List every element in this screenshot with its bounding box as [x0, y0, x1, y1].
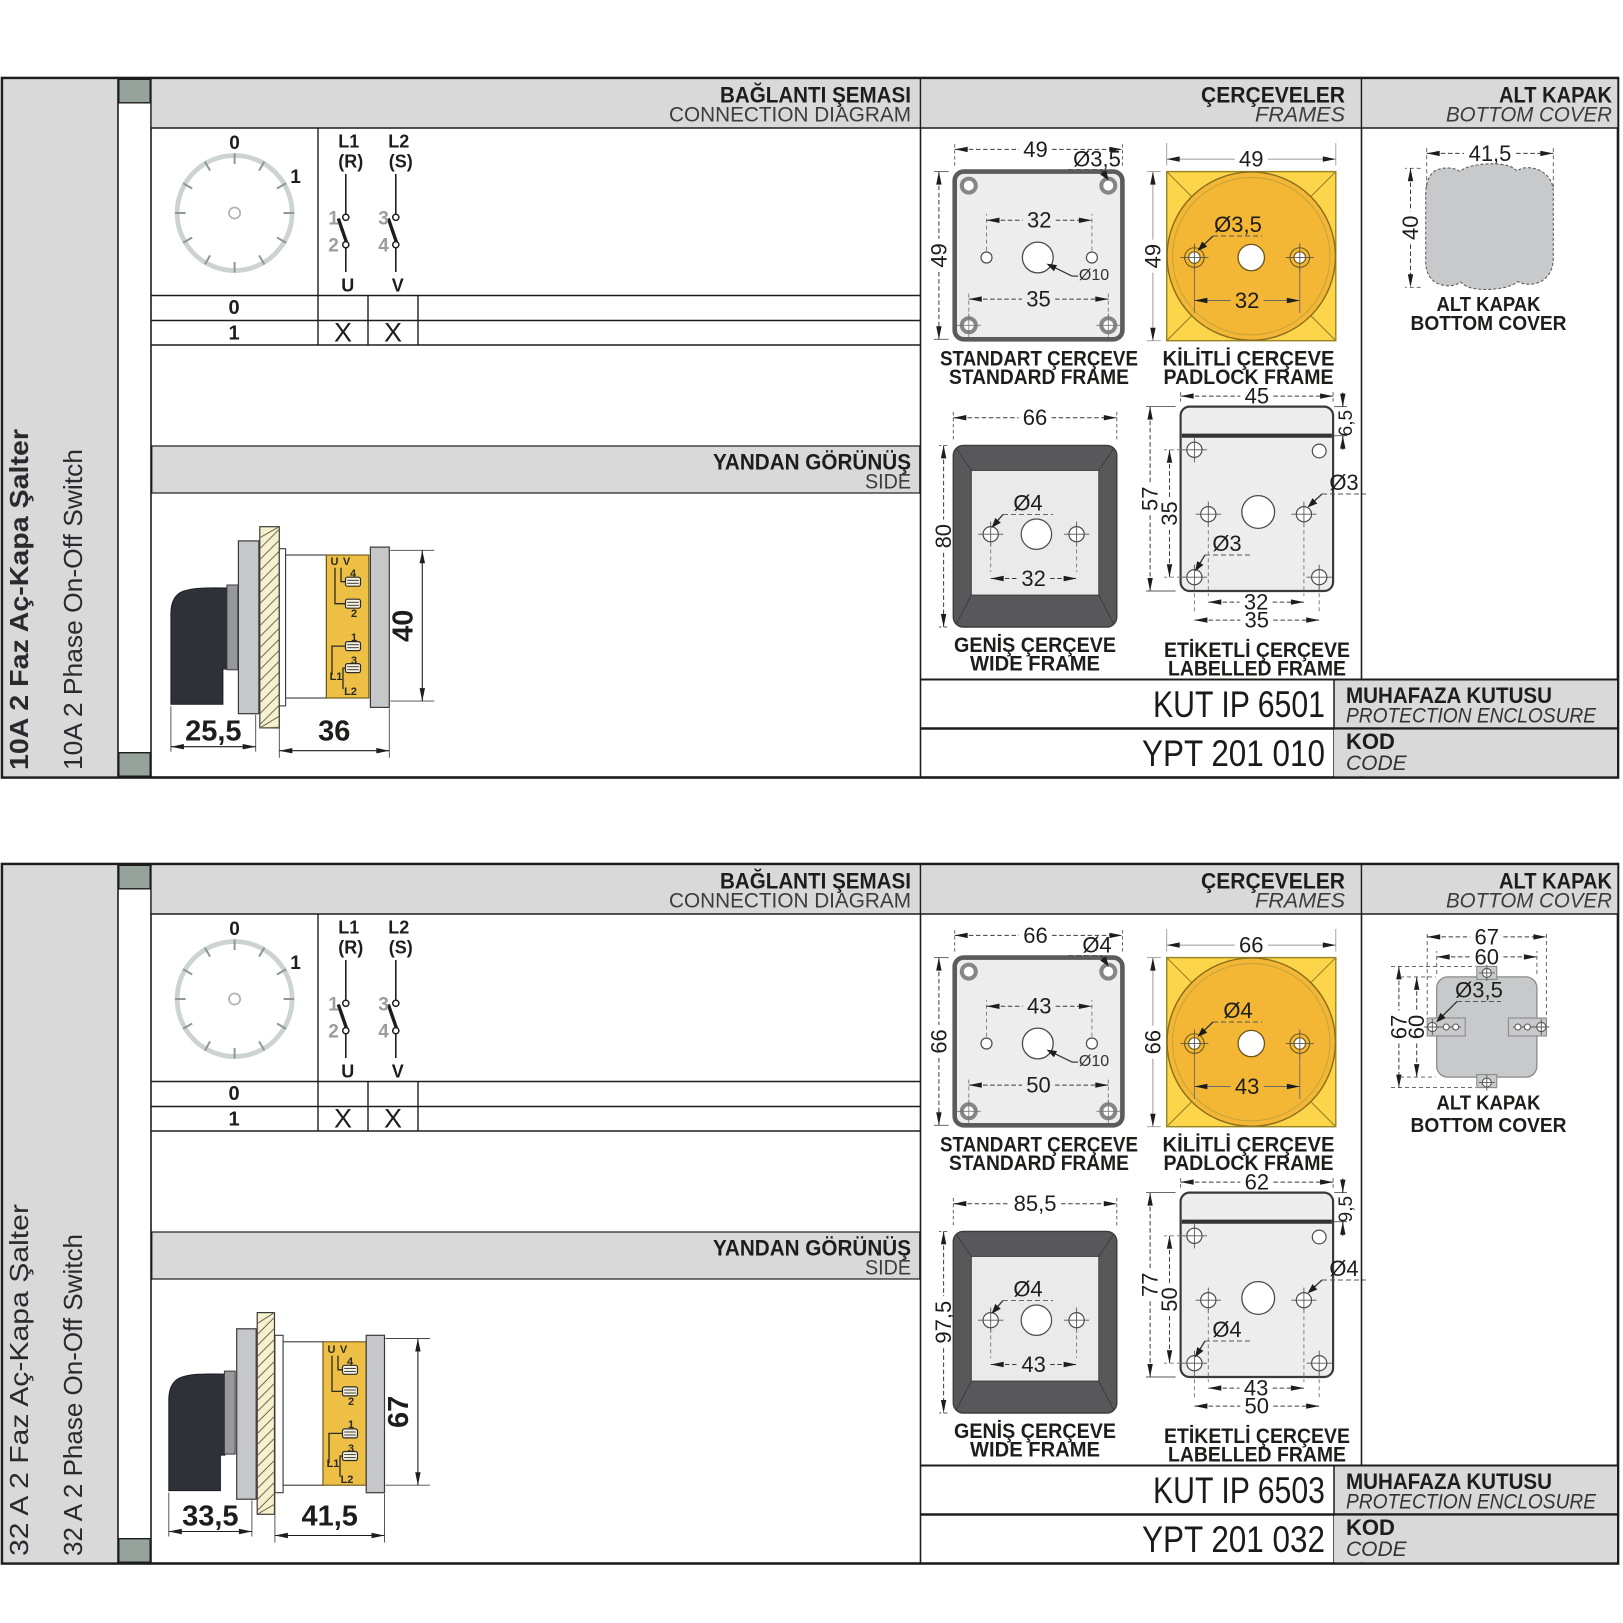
svg-text:Ø10: Ø10 — [1079, 1053, 1109, 1070]
svg-text:4: 4 — [378, 1022, 389, 1043]
svg-text:1: 1 — [328, 209, 339, 230]
svg-text:32: 32 — [1235, 288, 1259, 313]
svg-text:X: X — [384, 318, 402, 348]
svg-text:33,5: 33,5 — [182, 1501, 238, 1533]
svg-text:50: 50 — [1157, 1287, 1182, 1311]
svg-text:V: V — [340, 1344, 348, 1356]
svg-text:Ø10: Ø10 — [1079, 267, 1109, 284]
svg-text:3: 3 — [378, 209, 389, 230]
svg-text:FRAMES: FRAMES — [1255, 890, 1345, 913]
svg-text:49: 49 — [1140, 244, 1165, 268]
svg-text:32 A 2 Phase On-Off Switch: 32 A 2 Phase On-Off Switch — [58, 1234, 88, 1556]
svg-text:SIDE: SIDE — [865, 1257, 911, 1280]
svg-text:ALT KAPAK: ALT KAPAK — [1437, 1092, 1541, 1115]
svg-text:YPT 201 032: YPT 201 032 — [1142, 1519, 1325, 1560]
svg-text:9,5: 9,5 — [1336, 1196, 1357, 1222]
svg-text:1: 1 — [290, 953, 301, 974]
svg-text:35: 35 — [1157, 501, 1182, 525]
svg-text:66: 66 — [1023, 923, 1047, 948]
svg-text:Ø4: Ø4 — [1223, 998, 1252, 1023]
svg-text:(R): (R) — [338, 152, 363, 172]
svg-text:32: 32 — [1027, 208, 1051, 233]
svg-text:4: 4 — [347, 1356, 354, 1368]
svg-text:50: 50 — [1026, 1073, 1050, 1098]
svg-text:67: 67 — [383, 1396, 415, 1428]
svg-text:41,5: 41,5 — [301, 1501, 357, 1533]
svg-text:2: 2 — [348, 1396, 354, 1408]
svg-text:Ø4: Ø4 — [1013, 1276, 1042, 1301]
svg-text:1: 1 — [228, 323, 239, 345]
svg-text:66: 66 — [926, 1029, 951, 1053]
svg-text:40: 40 — [1398, 216, 1423, 240]
svg-text:Ø3,5: Ø3,5 — [1455, 978, 1503, 1003]
svg-text:FRAMES: FRAMES — [1255, 104, 1345, 127]
svg-text:43: 43 — [1235, 1074, 1259, 1099]
svg-text:35: 35 — [1245, 608, 1269, 633]
svg-text:X: X — [334, 1104, 352, 1134]
svg-text:49: 49 — [1023, 137, 1047, 162]
svg-text:L2: L2 — [341, 1474, 354, 1486]
svg-text:L2: L2 — [388, 132, 409, 152]
svg-text:62: 62 — [1245, 1170, 1269, 1195]
svg-text:41,5: 41,5 — [1469, 141, 1512, 166]
svg-text:Ø4: Ø4 — [1329, 1256, 1358, 1281]
svg-text:WIDE FRAME: WIDE FRAME — [970, 653, 1100, 676]
svg-text:Ø3,5: Ø3,5 — [1214, 212, 1262, 237]
svg-text:L1: L1 — [330, 671, 343, 683]
svg-text:36: 36 — [318, 716, 350, 748]
svg-text:CODE: CODE — [1346, 752, 1408, 775]
svg-text:KOD: KOD — [1346, 1515, 1395, 1540]
svg-text:KUT IP 6501: KUT IP 6501 — [1153, 684, 1325, 725]
svg-text:1: 1 — [228, 1109, 239, 1131]
svg-text:43: 43 — [1021, 1352, 1045, 1377]
svg-text:80: 80 — [931, 524, 956, 548]
svg-text:1: 1 — [348, 1419, 354, 1431]
svg-text:KOD: KOD — [1346, 729, 1395, 754]
svg-text:Ø3: Ø3 — [1329, 470, 1358, 495]
svg-text:X: X — [334, 318, 352, 348]
svg-text:4: 4 — [378, 236, 389, 257]
svg-text:49: 49 — [1239, 147, 1263, 172]
svg-text:66: 66 — [1239, 933, 1263, 958]
svg-text:STANDARD FRAME: STANDARD FRAME — [949, 1152, 1129, 1175]
svg-text:10A 2 Phase On-Off Switch: 10A 2 Phase On-Off Switch — [58, 449, 88, 770]
svg-text:85,5: 85,5 — [1014, 1191, 1057, 1216]
svg-text:43: 43 — [1027, 994, 1051, 1019]
svg-text:25,5: 25,5 — [185, 716, 241, 748]
svg-text:0: 0 — [229, 133, 240, 154]
svg-text:Ø3: Ø3 — [1212, 531, 1241, 556]
svg-text:WIDE FRAME: WIDE FRAME — [970, 1439, 1100, 1462]
svg-text:U: U — [331, 556, 339, 568]
svg-text:U: U — [328, 1344, 336, 1356]
svg-text:LABELLED FRAME: LABELLED FRAME — [1168, 1444, 1346, 1467]
svg-text:49: 49 — [926, 243, 951, 267]
svg-text:32: 32 — [1021, 566, 1045, 591]
svg-text:35: 35 — [1026, 287, 1050, 312]
svg-text:Ø3,5: Ø3,5 — [1073, 147, 1121, 172]
svg-text:60: 60 — [1475, 944, 1499, 969]
svg-text:PROTECTION ENCLOSURE: PROTECTION ENCLOSURE — [1346, 1491, 1597, 1514]
svg-text:L2: L2 — [344, 686, 357, 698]
svg-text:0: 0 — [229, 919, 240, 940]
svg-text:97,5: 97,5 — [931, 1301, 956, 1344]
svg-text:LABELLED FRAME: LABELLED FRAME — [1168, 658, 1346, 681]
svg-text:BOTTOM COVER: BOTTOM COVER — [1411, 312, 1567, 335]
svg-text:L1: L1 — [327, 1458, 340, 1470]
svg-text:2: 2 — [351, 608, 357, 620]
svg-text:1: 1 — [328, 995, 339, 1016]
svg-text:3: 3 — [351, 655, 357, 667]
svg-text:32 A 2 Faz Aç-Kapa Şalter: 32 A 2 Faz Aç-Kapa Şalter — [4, 1204, 34, 1556]
svg-text:45: 45 — [1245, 384, 1269, 409]
svg-text:(R): (R) — [338, 938, 363, 958]
svg-text:0: 0 — [228, 297, 239, 319]
svg-text:Ø4: Ø4 — [1082, 933, 1111, 958]
svg-text:3: 3 — [378, 995, 389, 1016]
svg-text:2: 2 — [328, 1022, 339, 1043]
svg-text:SIDE: SIDE — [865, 471, 911, 494]
svg-text:L1: L1 — [338, 132, 359, 152]
svg-text:1: 1 — [290, 167, 301, 188]
svg-text:Ø4: Ø4 — [1013, 490, 1042, 515]
svg-text:1: 1 — [351, 632, 357, 644]
svg-text:50: 50 — [1245, 1394, 1269, 1419]
svg-text:CODE: CODE — [1346, 1538, 1408, 1561]
svg-text:BOTTOM COVER: BOTTOM COVER — [1446, 104, 1612, 127]
svg-text:L1: L1 — [338, 918, 359, 938]
svg-text:STANDARD FRAME: STANDARD FRAME — [949, 366, 1129, 389]
svg-text:Ø4: Ø4 — [1212, 1317, 1241, 1342]
svg-text:10A 2 Faz Aç-Kapa Şalter: 10A 2 Faz Aç-Kapa Şalter — [4, 429, 34, 770]
svg-text:6,5: 6,5 — [1336, 410, 1357, 436]
svg-text:V: V — [392, 276, 404, 296]
svg-text:(S): (S) — [389, 938, 413, 958]
svg-text:CONNECTION DIAGRAM: CONNECTION DIAGRAM — [669, 890, 911, 913]
svg-text:X: X — [384, 1104, 402, 1134]
svg-text:U: U — [341, 1062, 354, 1082]
svg-text:60: 60 — [1404, 1015, 1429, 1039]
svg-text:KUT IP 6503: KUT IP 6503 — [1153, 1470, 1325, 1511]
svg-text:3: 3 — [348, 1443, 354, 1455]
svg-text:L2: L2 — [388, 918, 409, 938]
svg-text:BOTTOM COVER: BOTTOM COVER — [1411, 1114, 1567, 1137]
svg-text:U: U — [341, 276, 354, 296]
svg-text:PROTECTION ENCLOSURE: PROTECTION ENCLOSURE — [1346, 705, 1597, 728]
svg-text:66: 66 — [1023, 405, 1047, 430]
svg-text:(S): (S) — [389, 152, 413, 172]
svg-text:V: V — [343, 556, 351, 568]
svg-text:66: 66 — [1140, 1030, 1165, 1054]
svg-text:YPT 201 010: YPT 201 010 — [1142, 733, 1325, 774]
svg-text:V: V — [392, 1062, 404, 1082]
svg-text:CONNECTION DIAGRAM: CONNECTION DIAGRAM — [669, 104, 911, 127]
svg-text:4: 4 — [350, 568, 357, 580]
svg-text:0: 0 — [228, 1083, 239, 1105]
svg-text:40: 40 — [387, 610, 419, 642]
svg-text:2: 2 — [328, 236, 339, 257]
svg-text:BOTTOM COVER: BOTTOM COVER — [1446, 890, 1612, 913]
